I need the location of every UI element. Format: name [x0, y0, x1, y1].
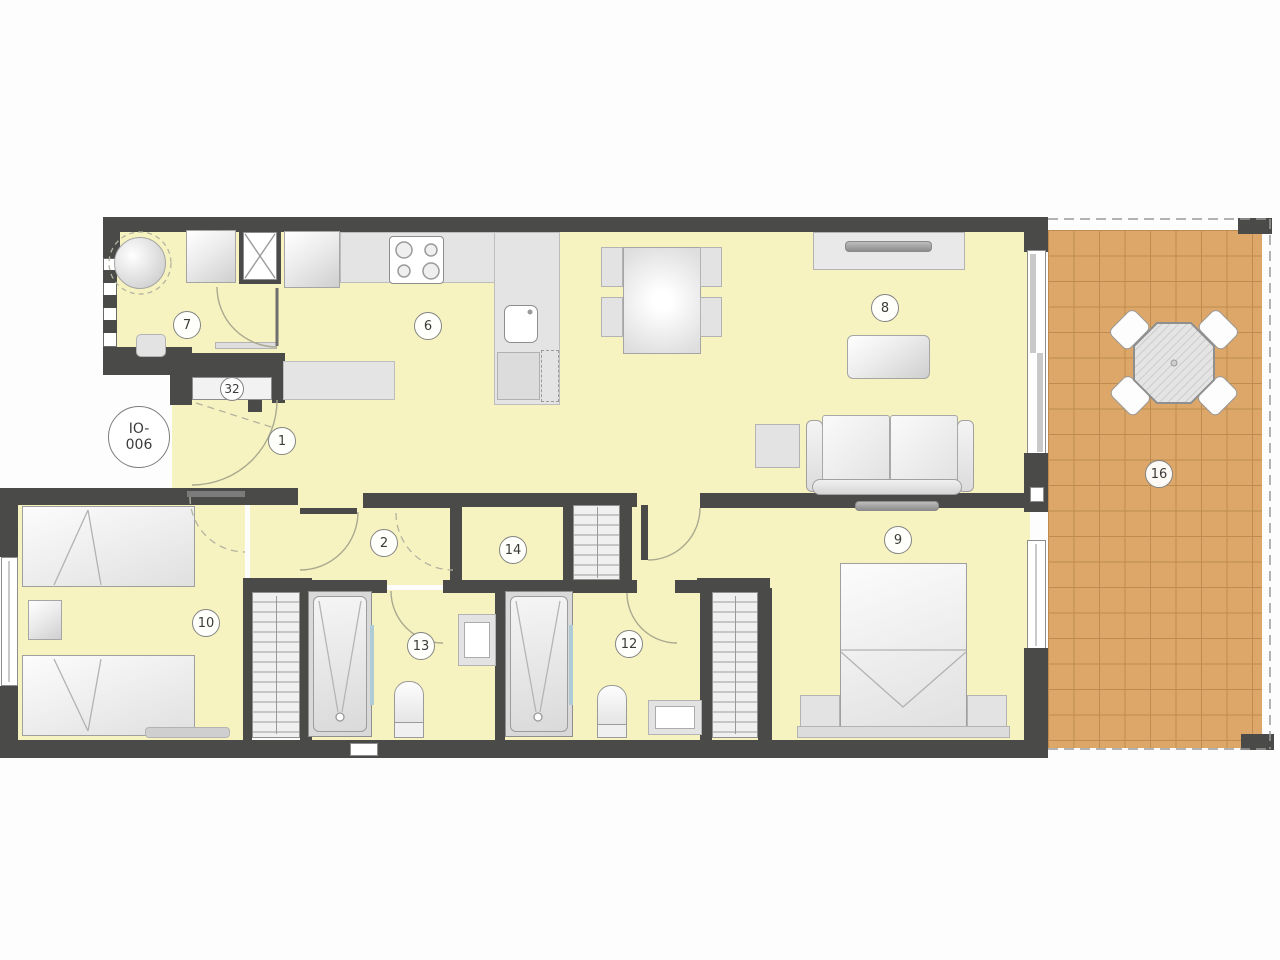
washbasin-bowl [464, 622, 490, 658]
sofa-cushion [822, 415, 890, 481]
wall-wardrobe2-left [243, 592, 252, 740]
room-label-13: 13 [407, 632, 435, 660]
wardrobe-rail [735, 596, 736, 734]
bed-double [840, 563, 967, 730]
wardrobe-bedroom-2 [252, 592, 300, 738]
toilet-bath-2 [394, 681, 424, 725]
nightstand [28, 600, 62, 640]
wall-entrance-top [180, 353, 285, 377]
base-cabinet [497, 352, 540, 400]
shower-tray [313, 596, 367, 732]
dining-chair [601, 297, 623, 337]
door-leaf-hallway [300, 508, 357, 514]
room-label-7: 7 [173, 311, 201, 339]
shower-glass [370, 625, 374, 705]
shelf-strip [215, 342, 277, 349]
wall-shelf [145, 727, 230, 738]
room-label-16: 16 [1145, 460, 1173, 488]
floor-hallway-opening [298, 490, 363, 506]
shower-tray [510, 596, 568, 732]
shower-glass [569, 625, 573, 705]
floor-hallway [250, 505, 455, 585]
wall-wardrobe1-right [758, 588, 772, 740]
wall-left-upper [0, 488, 18, 557]
headboard [797, 726, 1010, 738]
dishwasher-dashed [541, 350, 559, 402]
wall-hall-band-mid [363, 493, 462, 508]
wall-storage-divider [563, 505, 573, 580]
sofa-cushion [890, 415, 958, 481]
kitchen-sink [504, 305, 538, 343]
room-label-8: 8 [871, 294, 899, 322]
door-leaf-mini-hall [641, 505, 648, 560]
terrace-corner-top [1238, 218, 1272, 234]
door-hinge-block [248, 399, 262, 412]
room-label-9: 9 [884, 526, 912, 554]
closet-rail [597, 507, 598, 577]
louver-slat [103, 295, 117, 308]
room-label-2: 2 [370, 529, 398, 557]
window-frame-line [1035, 544, 1037, 646]
side-table [755, 424, 800, 468]
closet-hall [573, 505, 620, 580]
sofa-back [812, 479, 962, 495]
wall-hall-band-left [0, 488, 298, 505]
tall-cabinet-front [243, 232, 277, 280]
door-leaf-bedroom-2 [187, 491, 245, 497]
room-label-1: 1 [268, 427, 296, 455]
wall-closet-right [620, 493, 632, 583]
toilet-tank [394, 722, 424, 738]
window-frame-line [8, 561, 10, 682]
dining-chair [700, 247, 722, 287]
unit-number-badge: IO- 006 [108, 406, 170, 468]
bed-single [22, 655, 195, 736]
wall-bottom [0, 740, 1048, 758]
room-label-32: 32 [220, 377, 244, 401]
tv [845, 241, 932, 252]
unit-number-line1: IO- [129, 421, 150, 437]
unit-number-line2: 006 [126, 437, 153, 453]
bed-single [22, 506, 195, 587]
wardrobe-bedroom-1 [712, 592, 758, 738]
louver-slat [103, 320, 117, 333]
vanity-bowl [655, 706, 695, 729]
dining-chair [601, 247, 623, 287]
toilet-bath-1 [597, 685, 627, 727]
wall-tv-bedroom-1 [855, 501, 939, 511]
room-label-12: 12 [615, 630, 643, 658]
terrace-corner-bottom [1241, 734, 1274, 750]
drain-unit [136, 334, 166, 357]
toilet-tank [597, 724, 627, 738]
vent-box [350, 743, 378, 756]
washing-machine [186, 230, 236, 283]
pillar [1030, 487, 1044, 502]
wall-right-top [1024, 232, 1048, 252]
slider-panel [1037, 353, 1043, 452]
room-label-14: 14 [499, 536, 527, 564]
floor-plan: 7 32 1 6 8 2 14 13 12 10 9 16 IO- 006 [0, 0, 1280, 960]
wardrobe-rail [276, 596, 277, 734]
wall-bath-divider [495, 590, 505, 740]
room-label-10: 10 [192, 609, 220, 637]
dining-table [623, 247, 701, 354]
wall-storage-left [450, 505, 462, 580]
boiler [114, 237, 166, 289]
kitchen-peninsula [283, 361, 395, 400]
room-label-6: 6 [414, 312, 442, 340]
slider-panel [1030, 254, 1036, 353]
stove [389, 236, 444, 284]
coffee-table [847, 335, 930, 379]
terrace-floor [1048, 230, 1262, 748]
fridge [284, 231, 340, 288]
dining-chair [700, 297, 722, 337]
